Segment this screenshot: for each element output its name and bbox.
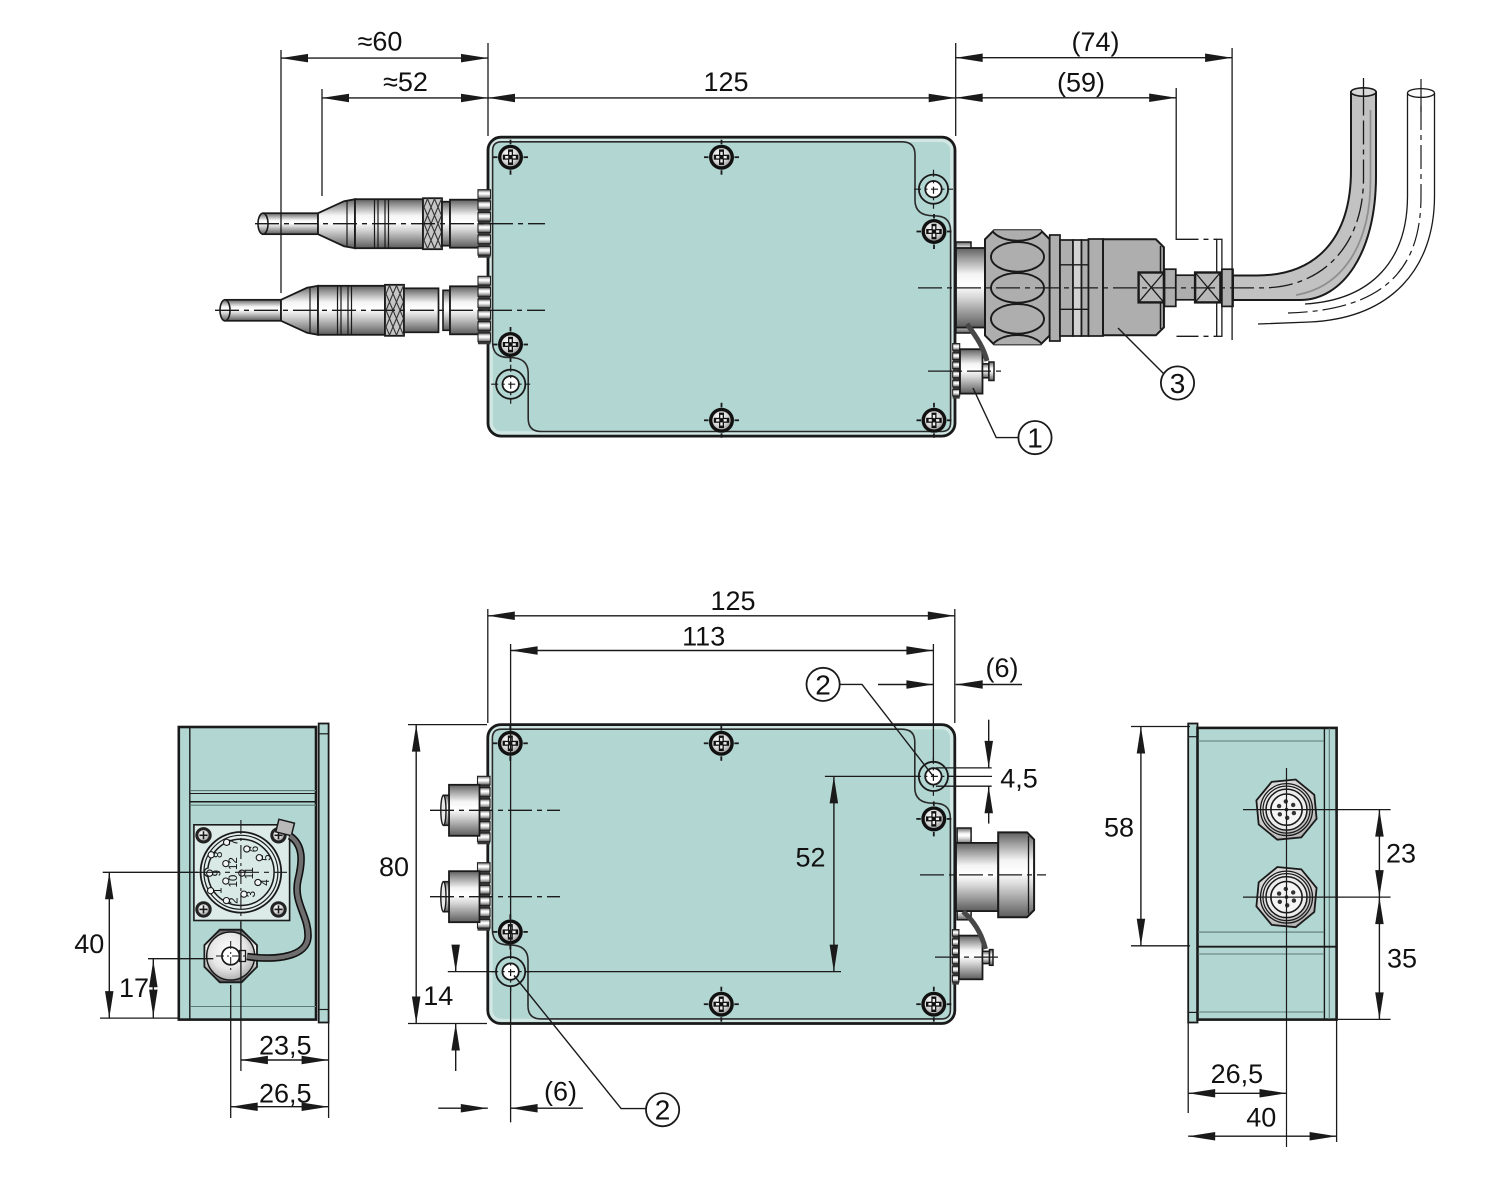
svg-text:113: 113 <box>682 622 725 652</box>
svg-text:2: 2 <box>655 1095 671 1126</box>
svg-text:12: 12 <box>228 857 240 870</box>
svg-text:3: 3 <box>246 891 258 897</box>
svg-text:80: 80 <box>379 852 409 882</box>
svg-text:4,5: 4,5 <box>1000 764 1038 794</box>
svg-text:52: 52 <box>795 842 825 872</box>
svg-text:2: 2 <box>815 669 831 700</box>
svg-text:10: 10 <box>228 875 240 888</box>
svg-text:58: 58 <box>1104 813 1134 843</box>
svg-text:35: 35 <box>1387 944 1417 974</box>
svg-text:125: 125 <box>710 586 755 616</box>
svg-text:40: 40 <box>74 929 104 959</box>
svg-text:23: 23 <box>1386 838 1416 868</box>
svg-text:23,5: 23,5 <box>259 1030 312 1060</box>
svg-text:2: 2 <box>228 897 240 903</box>
svg-text:26,5: 26,5 <box>259 1078 312 1108</box>
svg-text:9: 9 <box>212 870 224 876</box>
svg-text:40: 40 <box>1246 1103 1276 1133</box>
svg-text:26,5: 26,5 <box>1211 1059 1264 1089</box>
svg-text:(74): (74) <box>1071 27 1119 57</box>
svg-text:(6): (6) <box>986 653 1019 683</box>
svg-text:≈52: ≈52 <box>383 67 428 97</box>
svg-text:1: 1 <box>213 887 225 893</box>
svg-text:4: 4 <box>260 879 272 886</box>
svg-text:(59): (59) <box>1057 68 1105 98</box>
svg-text:7: 7 <box>229 839 241 845</box>
svg-text:3: 3 <box>1170 368 1186 399</box>
svg-text:(6): (6) <box>544 1077 577 1107</box>
svg-text:≈60: ≈60 <box>358 27 403 57</box>
svg-text:125: 125 <box>703 67 748 97</box>
svg-text:5: 5 <box>261 854 273 860</box>
svg-text:14: 14 <box>423 981 453 1011</box>
svg-text:11: 11 <box>244 867 256 879</box>
svg-text:6: 6 <box>249 846 261 852</box>
svg-text:1: 1 <box>1027 423 1043 454</box>
svg-text:17: 17 <box>119 973 149 1003</box>
svg-text:8: 8 <box>213 852 225 858</box>
